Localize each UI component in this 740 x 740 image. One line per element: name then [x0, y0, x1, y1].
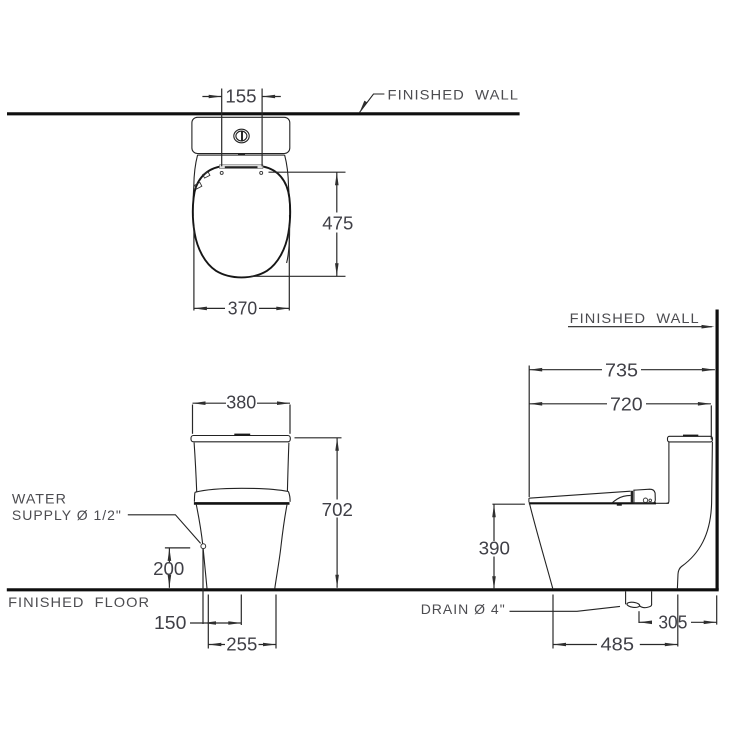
svg-text:255: 255: [226, 634, 257, 655]
svg-text:WATER: WATER: [12, 491, 67, 507]
svg-text:305: 305: [658, 612, 687, 633]
svg-text:FINISHED WALL: FINISHED WALL: [388, 87, 520, 103]
svg-text:735: 735: [605, 359, 638, 380]
svg-text:702: 702: [322, 499, 353, 520]
svg-text:150: 150: [154, 612, 186, 633]
svg-text:475: 475: [322, 212, 353, 233]
svg-text:155: 155: [225, 86, 256, 107]
svg-text:720: 720: [610, 394, 643, 415]
svg-text:200: 200: [153, 558, 184, 579]
svg-text:DRAIN Ø 4": DRAIN Ø 4": [421, 601, 506, 617]
svg-text:485: 485: [601, 633, 635, 654]
svg-text:370: 370: [228, 298, 257, 319]
svg-text:FINISHED FLOOR: FINISHED FLOOR: [8, 594, 150, 610]
svg-text:SUPPLY Ø 1/2": SUPPLY Ø 1/2": [12, 507, 122, 523]
svg-text:FINISHED WALL: FINISHED WALL: [570, 310, 700, 326]
svg-text:390: 390: [479, 538, 510, 559]
svg-text:380: 380: [226, 391, 256, 412]
